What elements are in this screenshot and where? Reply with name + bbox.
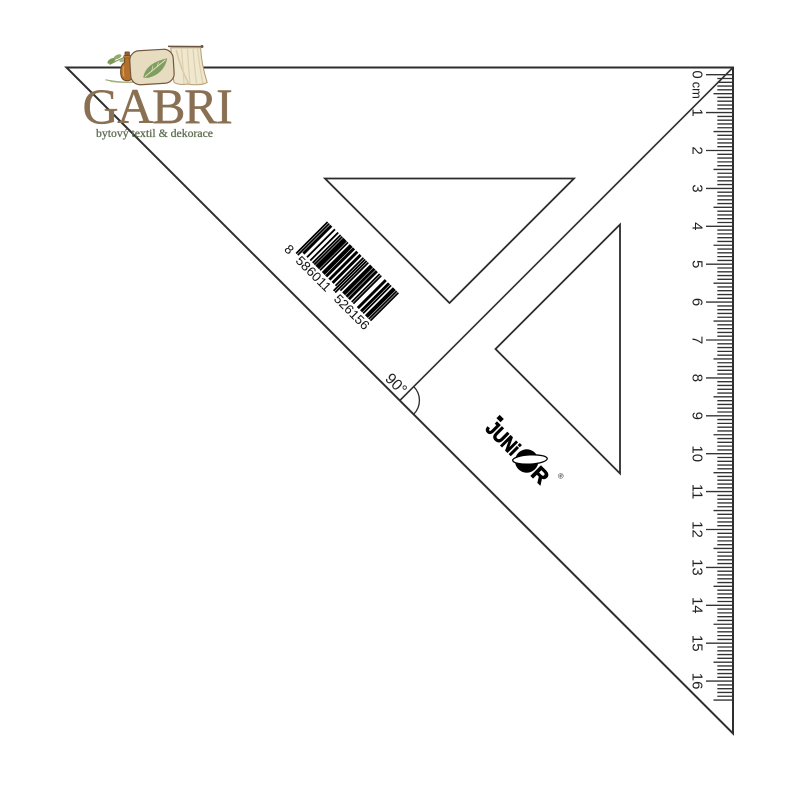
svg-text:12: 12 [688,521,705,538]
svg-text:4: 4 [688,222,705,230]
svg-text:0cm: 0cm [688,70,705,98]
svg-text:7: 7 [688,336,705,344]
svg-text:bytový textil & dekorace: bytový textil & dekorace [96,126,213,140]
svg-text:1: 1 [688,108,705,116]
svg-text:3: 3 [688,184,705,192]
svg-text:13: 13 [688,559,705,576]
svg-text:16: 16 [688,673,705,690]
svg-text:10: 10 [688,445,705,462]
svg-text:6: 6 [688,298,705,306]
svg-text:9: 9 [688,412,705,420]
svg-text:5: 5 [688,260,705,268]
svg-text:8: 8 [688,374,705,382]
svg-text:2: 2 [688,146,705,154]
svg-text:11: 11 [688,484,705,500]
svg-text:14: 14 [688,597,705,614]
svg-text:15: 15 [688,635,705,652]
